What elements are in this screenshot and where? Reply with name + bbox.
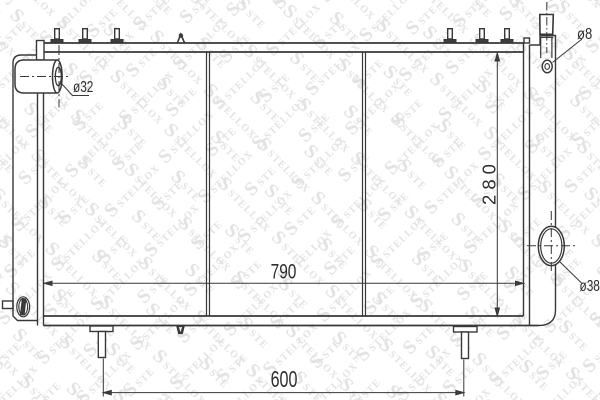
svg-text:600: 600 bbox=[271, 367, 298, 392]
svg-text:ø8: ø8 bbox=[577, 26, 592, 43]
svg-text:ø38: ø38 bbox=[580, 276, 600, 294]
svg-text:ø32: ø32 bbox=[73, 77, 94, 95]
svg-text:790: 790 bbox=[271, 259, 297, 283]
svg-text:280: 280 bbox=[479, 159, 500, 205]
